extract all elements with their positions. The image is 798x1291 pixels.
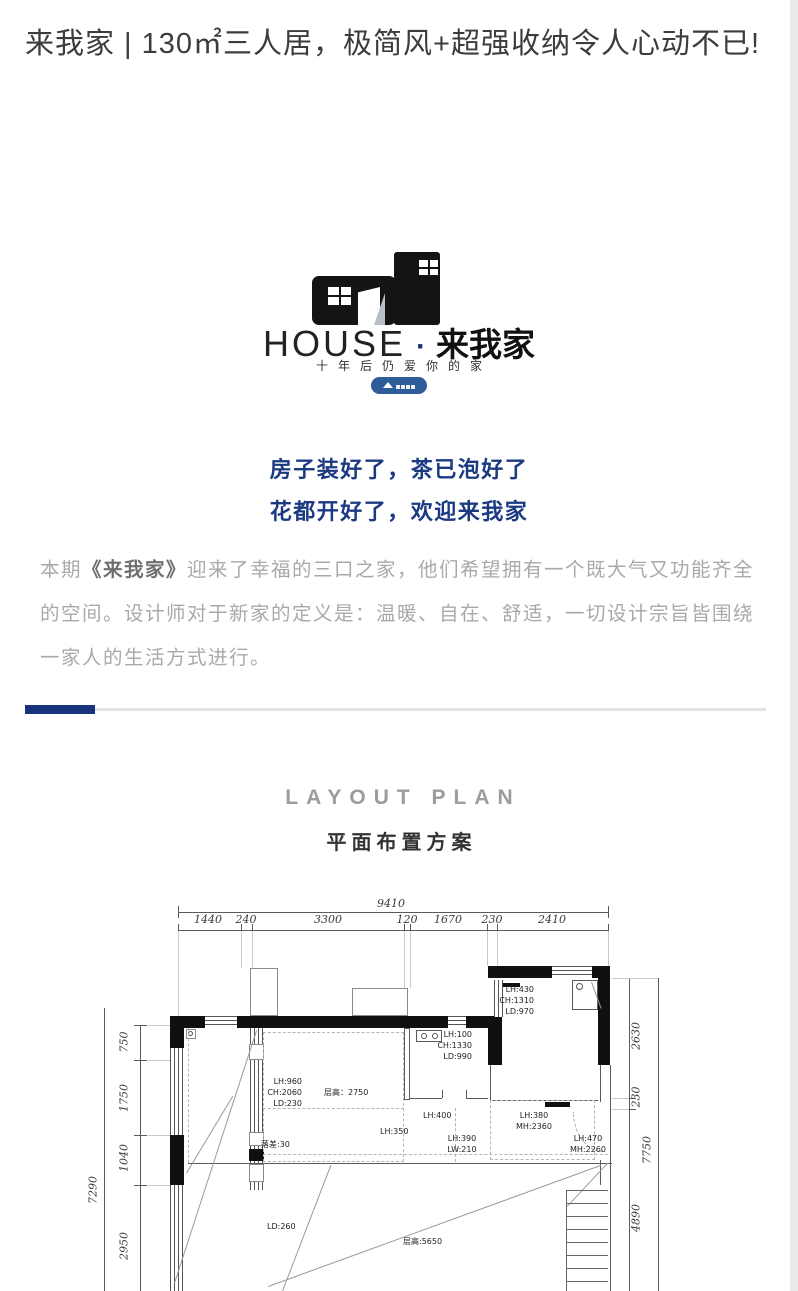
plan-label-room-top: LH:100 CH:1330 LD:990 (430, 1029, 472, 1062)
plan-label-ld-260: LD:260 (267, 1221, 296, 1232)
dim-extension (612, 1098, 629, 1099)
window-wall (205, 1016, 237, 1028)
dimension-line (178, 930, 608, 931)
dim-seg: 1040 (118, 1144, 131, 1172)
partition-line (490, 1065, 491, 1100)
dim-total-left: 7290 (87, 1176, 100, 1204)
page-edge-gutter (790, 0, 798, 1291)
plan-label-lh-470: LH:470 MH:2260 (566, 1133, 610, 1155)
diagonal-line (174, 1030, 257, 1283)
plan-label-ceiling-2750: 层高：2750 (324, 1087, 368, 1098)
dim-extension (612, 978, 658, 979)
dim-seg: 3300 (314, 913, 342, 926)
wall (170, 1135, 184, 1185)
dim-seg: 750 (118, 1032, 131, 1053)
dim-extension (148, 1135, 170, 1136)
dim-seg: 1750 (118, 1084, 131, 1112)
floor-plan: 9410 1440 240 3300 120 1670 230 2410 (0, 0, 798, 1291)
dim-extension (487, 931, 488, 966)
column (249, 1164, 264, 1182)
wall (488, 1028, 502, 1065)
wall (598, 978, 610, 1065)
dimension-line (140, 1025, 141, 1291)
floor-divider (188, 1163, 612, 1164)
sink-icon (576, 983, 583, 990)
plan-label-lh-380: LH:380 MH:2360 (512, 1110, 556, 1132)
staircase (566, 1190, 608, 1291)
partition-line (466, 1090, 467, 1098)
dim-seg: 1440 (194, 913, 222, 926)
dim-seg: 230 (482, 913, 503, 926)
partition-line (466, 1098, 488, 1099)
dim-total-right: 7750 (641, 1136, 654, 1164)
plan-label-ceiling-5650: 层高:5650 (403, 1236, 442, 1247)
window-wall (448, 1016, 466, 1028)
dim-extension (241, 931, 242, 968)
dim-seg: 4890 (630, 1204, 643, 1232)
wall (466, 1016, 502, 1028)
plan-label-lh-390: LH:390 LW:210 (445, 1133, 479, 1155)
dimension-line (658, 978, 659, 1291)
dim-extension (608, 931, 609, 966)
dim-tick (134, 1135, 147, 1136)
dimension-line (104, 1008, 105, 1291)
partition-wall (404, 1028, 410, 1100)
dim-tick (178, 906, 179, 918)
dim-seg: 2950 (118, 1232, 131, 1260)
dim-seg: 230 (630, 1087, 643, 1108)
dim-extension (404, 931, 405, 988)
wall (592, 966, 610, 978)
dim-seg: 1670 (434, 913, 462, 926)
diagonal-line (186, 1096, 233, 1174)
dim-extension (612, 1109, 629, 1110)
exterior-block (250, 968, 278, 1016)
wall (249, 1149, 264, 1161)
exterior-block (352, 988, 408, 1016)
boundary-line (610, 1102, 611, 1291)
dim-tick (134, 1060, 147, 1061)
partition-line (410, 1098, 442, 1099)
burner-icon (421, 1033, 427, 1039)
partition-line (442, 1090, 443, 1098)
dim-tick (608, 906, 609, 918)
dim-total-top: 9410 (377, 897, 405, 910)
plan-label-drop-30: 落差:30 (261, 1139, 290, 1150)
dim-extension (252, 931, 253, 968)
wall (237, 1016, 448, 1028)
dim-tick (134, 1025, 147, 1026)
plan-label-kitchen: LH:430 CH:1310 LD:970 (492, 984, 534, 1017)
boundary-line (600, 1065, 601, 1102)
dim-tick (134, 1185, 147, 1186)
boundary-line (610, 1065, 611, 1102)
dim-extension (410, 931, 411, 988)
window-wall (552, 966, 592, 978)
wall (170, 1028, 184, 1048)
dashed-line (188, 1028, 189, 1163)
diagonal-line (268, 1165, 601, 1287)
dim-extension (497, 931, 498, 966)
dim-seg: 120 (397, 913, 418, 926)
dim-extension (148, 1060, 170, 1061)
article-page: 来我家 | 130㎡三人居，极简风+超强收纳令人心动不已! HOUSE·来我家 … (0, 0, 798, 1291)
dim-seg: 2630 (630, 1022, 643, 1050)
dim-extension (148, 1025, 170, 1026)
plan-label-room-left: LH:960 CH:2060 LD:230 (256, 1076, 302, 1109)
wall (488, 966, 552, 978)
plan-label-lh-400: LH:400 (423, 1110, 451, 1121)
dim-extension (178, 931, 179, 1016)
dim-extension (148, 1185, 170, 1186)
dim-seg: 2410 (538, 913, 566, 926)
dashed-line (263, 1154, 608, 1155)
plan-label-lh-350: LH:350 (380, 1126, 408, 1137)
dim-seg: 240 (236, 913, 257, 926)
wall (170, 1016, 205, 1028)
